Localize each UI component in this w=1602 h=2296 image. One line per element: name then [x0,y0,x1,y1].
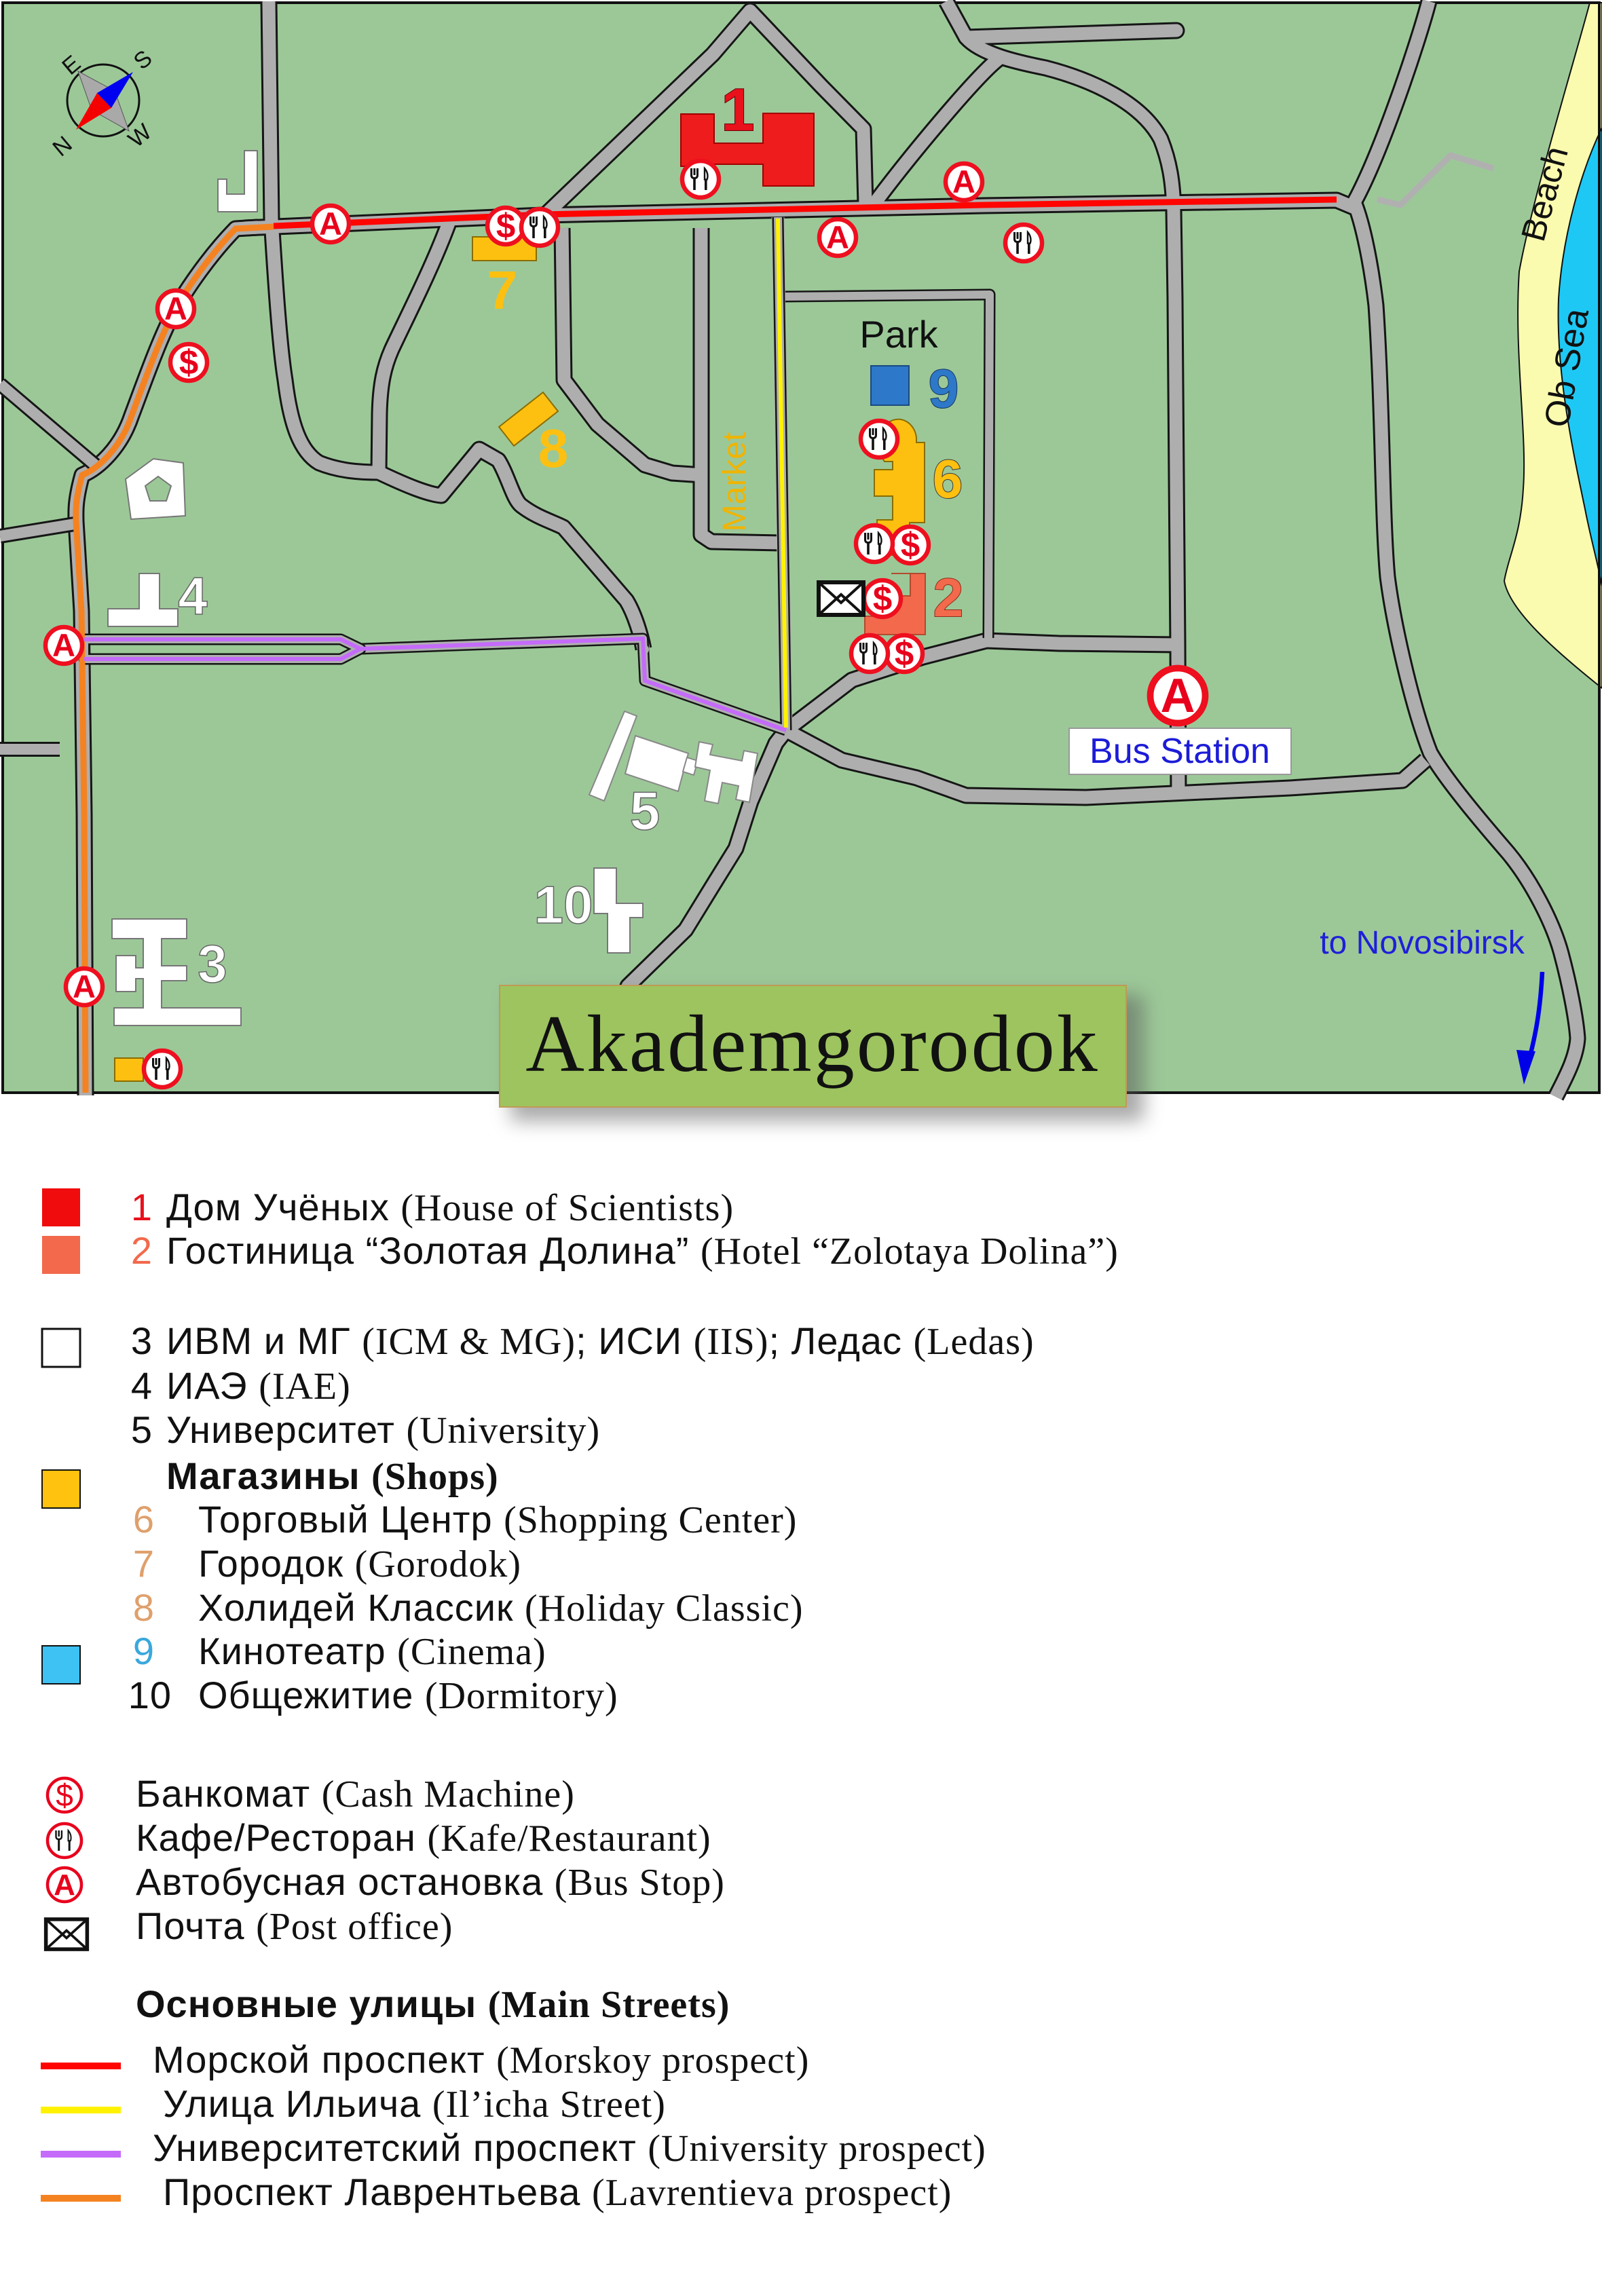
svg-text:3: 3 [198,934,227,994]
svg-text:4: 4 [178,566,207,626]
svg-text:Bus Station: Bus Station [1089,732,1270,771]
svg-text:Дом Учёных (House of Scientist: Дом Учёных (House of Scientists) [166,1186,734,1229]
svg-text:Общежитие (Dormitory): Общежитие (Dormitory) [198,1674,618,1717]
svg-text:Автобусная остановка (Bus Stop: Автобусная остановка (Bus Stop) [136,1860,725,1904]
svg-text:ИВМ и МГ (ICM & MG); ИСИ (IIS): ИВМ и МГ (ICM & MG); ИСИ (IIS); Ледас (L… [166,1319,1035,1363]
svg-text:Городок (Gorodok): Городок (Gorodok) [198,1542,521,1585]
svg-text:7: 7 [133,1542,155,1585]
svg-text:Университетский проспект (Univ: Университетский проспект (University pro… [153,2126,986,2170]
svg-text:to Novosibirsk: to Novosibirsk [1320,925,1525,961]
svg-text:Akademgorodok: Akademgorodok [525,998,1099,1089]
svg-text:Кафе/Ресторан (Kafe/Restaurant: Кафе/Ресторан (Kafe/Restaurant) [136,1816,711,1860]
svg-text:Основные улицы (Main Streets): Основные улицы (Main Streets) [136,1982,730,2026]
svg-text:Market: Market [717,432,753,532]
svg-text:9: 9 [929,358,959,419]
svg-text:10: 10 [534,875,593,935]
svg-text:2: 2 [131,1229,153,1272]
svg-text:A: A [54,1868,75,1902]
svg-text:1: 1 [722,76,755,143]
svg-text:6: 6 [133,1498,155,1541]
svg-text:Холидей Классик (Holiday Class: Холидей Классик (Holiday Classic) [198,1586,804,1630]
svg-text:Проспект Лаврентьева (Lavrenti: Проспект Лаврентьева (Lavrentieva prospe… [163,2170,952,2214]
svg-text:3: 3 [131,1319,153,1362]
svg-text:Магазины (Shops): Магазины (Shops) [166,1454,499,1498]
svg-text:Банкомат (Cash Machine): Банкомат (Cash Machine) [136,1772,575,1815]
svg-text:5: 5 [630,780,660,841]
svg-text:7: 7 [487,260,518,320]
svg-text:Торговый Центр (Shopping Cente: Торговый Центр (Shopping Center) [198,1498,797,1541]
svg-text:Гостиница “Золотая Долина” (Ho: Гостиница “Золотая Долина” (Hotel “Zolot… [166,1229,1119,1273]
svg-text:Университет (University): Университет (University) [166,1408,600,1452]
svg-text:5: 5 [131,1408,153,1451]
svg-text:Морской проспект (Morskoy pros: Морской проспект (Morskoy prospect) [153,2038,809,2082]
svg-text:8: 8 [133,1586,155,1629]
svg-text:10: 10 [128,1674,172,1716]
svg-text:Кинотеатр (Cinema): Кинотеатр (Cinema) [198,1630,546,1673]
svg-text:9: 9 [133,1630,155,1672]
svg-text:$: $ [56,1777,73,1813]
svg-text:8: 8 [538,418,569,478]
svg-text:2: 2 [933,567,964,628]
svg-text:1: 1 [131,1186,153,1228]
svg-text:4: 4 [131,1364,153,1407]
svg-text:Улица Ильича (Il’icha Street): Улица Ильича (Il’icha Street) [163,2082,666,2126]
svg-text:Почта (Post office): Почта (Post office) [136,1904,453,1948]
svg-text:6: 6 [933,449,963,509]
svg-text:Park: Park [859,313,938,356]
svg-text:ИАЭ (IAE): ИАЭ (IAE) [166,1364,351,1408]
